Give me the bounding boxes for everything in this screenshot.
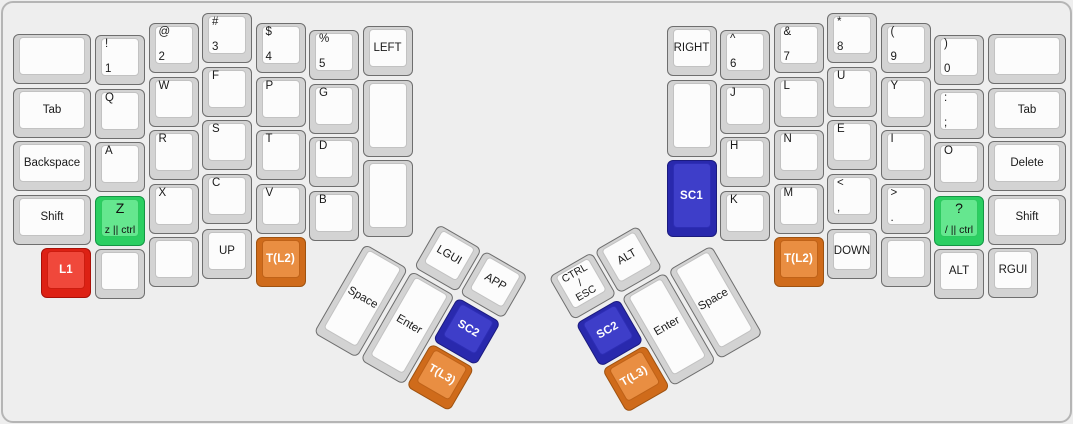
keytop: LGUI: [423, 229, 475, 281]
key-right-0[interactable]: )0: [934, 35, 984, 85]
keytop: Shift: [19, 198, 85, 236]
key-right-delete[interactable]: Delete: [988, 141, 1066, 191]
key-right-question-ctrl[interactable]: ?/ || ctrl: [934, 196, 984, 246]
keytop: [155, 240, 193, 278]
keytop: Tab: [19, 91, 85, 129]
key-right-alt[interactable]: ALT: [934, 249, 984, 299]
key-right-n[interactable]: N: [774, 130, 824, 180]
key-label: LGUI: [421, 229, 477, 282]
keytop: APP: [469, 256, 521, 308]
keytop: I: [887, 133, 925, 171]
keytop: %5: [315, 33, 353, 71]
keytop: *8: [833, 16, 871, 54]
key-label: UP: [205, 233, 249, 269]
keytop: CTRL/ESC: [555, 258, 607, 310]
key-label: L: [784, 80, 790, 92]
key-label: F: [212, 70, 219, 82]
key-left-blank-tall-1[interactable]: [363, 80, 413, 157]
key-left-t-l2[interactable]: T(L2): [256, 237, 306, 287]
key-label: / || ctrl: [937, 224, 981, 236]
key-label: V: [266, 187, 274, 199]
key-right-e[interactable]: E: [827, 120, 877, 170]
keytop: D: [315, 140, 353, 178]
key-label: ): [944, 38, 948, 50]
keytop: Backspace: [19, 144, 85, 182]
key-label: Y: [891, 80, 899, 92]
key-right-right-arrow[interactable]: RIGHT: [667, 26, 717, 76]
key-right-tab[interactable]: Tab: [988, 88, 1066, 138]
keytop: :;: [940, 92, 978, 130]
key-label: N: [784, 133, 792, 145]
key-left-c[interactable]: C: [202, 174, 252, 224]
key-right-7[interactable]: &7: [774, 23, 824, 73]
key-label: I: [891, 133, 894, 145]
keytop: [369, 83, 407, 148]
keytop: ALT: [601, 231, 653, 283]
key-label: Delete: [991, 145, 1063, 181]
key-right-down[interactable]: DOWN: [827, 229, 877, 279]
key-right-l[interactable]: L: [774, 77, 824, 127]
key-right-6[interactable]: ^6: [720, 30, 770, 80]
key-left-blank-bottom-1[interactable]: [95, 249, 145, 299]
key-label: Shift: [991, 199, 1063, 235]
key-label: 1: [105, 63, 111, 75]
key-left-2[interactable]: @2: [149, 23, 199, 73]
key-left-l1[interactable]: L1: [41, 248, 91, 298]
keytop: RGUI: [994, 251, 1032, 289]
key-label: X: [159, 187, 167, 199]
keytop: Tab: [994, 91, 1060, 129]
key-label: E: [837, 123, 845, 135]
key-left-z-ctrl[interactable]: Zz || ctrl: [95, 196, 145, 246]
keytop: $4: [262, 26, 300, 64]
keytop: P: [262, 80, 300, 118]
keytop: [994, 37, 1060, 75]
key-label: 6: [730, 58, 736, 70]
key-label: U: [837, 70, 845, 82]
keytop: T(L3): [416, 349, 468, 401]
keytop: #3: [208, 16, 246, 54]
key-right-semicolon[interactable]: :;: [934, 89, 984, 139]
key-left-r[interactable]: R: [149, 130, 199, 180]
key-label-line: ESC: [574, 283, 598, 304]
key-label: A: [105, 145, 113, 157]
key-label: :: [944, 92, 947, 104]
keytop: G: [315, 87, 353, 125]
key-label: D: [319, 140, 327, 152]
key-label: LEFT: [366, 30, 410, 66]
keytop: [19, 37, 85, 75]
key-label: ?: [941, 200, 977, 216]
key-label: Z: [102, 200, 138, 216]
key-left-g[interactable]: G: [309, 84, 359, 134]
key-label: RGUI: [991, 252, 1035, 288]
key-label: Backspace: [16, 145, 88, 181]
keytop: UP: [208, 232, 246, 270]
key-right-8[interactable]: *8: [827, 13, 877, 63]
key-label: W: [159, 80, 170, 92]
key-left-shift[interactable]: Shift: [13, 195, 91, 245]
keytop: B: [315, 194, 353, 232]
key-left-up[interactable]: UP: [202, 229, 252, 279]
keytop: [101, 252, 139, 290]
key-label: Q: [105, 92, 114, 104]
key-label: C: [212, 177, 220, 189]
keytop: E: [833, 123, 871, 161]
keytop: &7: [780, 26, 818, 64]
keytop: L1: [47, 251, 85, 289]
keytop: V: [262, 187, 300, 225]
key-right-blank-bottom[interactable]: [881, 237, 931, 287]
keytop: [369, 163, 407, 228]
keytop: ALT: [940, 252, 978, 290]
key-label: DOWN: [830, 233, 874, 269]
key-label: 4: [266, 51, 272, 63]
key-label: 3: [212, 41, 218, 53]
key-label: B: [319, 194, 327, 206]
key-label: S: [212, 123, 220, 135]
keytop: T(L2): [780, 240, 818, 278]
key-left-tab[interactable]: Tab: [13, 88, 91, 138]
keytop: !1: [101, 38, 139, 76]
key-label: 0: [944, 63, 950, 75]
key-label: M: [784, 187, 794, 199]
key-right-i[interactable]: I: [881, 130, 931, 180]
key-right-rgui[interactable]: RGUI: [988, 248, 1038, 298]
keytop: M: [780, 187, 818, 225]
keytop: Shift: [994, 198, 1060, 236]
key-label: #: [212, 16, 218, 28]
keytop: SC2: [581, 304, 633, 356]
key-label: L1: [44, 252, 88, 288]
key-label: (: [891, 26, 895, 38]
keytop: ?/ || ctrl: [940, 199, 978, 237]
key-label: .: [891, 212, 894, 224]
key-label: P: [266, 80, 274, 92]
keytop: L: [780, 80, 818, 118]
key-label: CTRL/ESC: [553, 257, 609, 310]
key-left-d[interactable]: D: [309, 137, 359, 187]
key-label: 7: [784, 51, 790, 63]
key-left-left-arrow[interactable]: LEFT: [363, 26, 413, 76]
keytop: S: [208, 123, 246, 161]
keytop: [887, 240, 925, 278]
key-right-k[interactable]: K: [720, 191, 770, 241]
keytop: [673, 83, 711, 148]
key-left-v[interactable]: V: [256, 184, 306, 234]
key-right-comma[interactable]: <,: [827, 174, 877, 224]
key-label: RIGHT: [670, 30, 714, 66]
key-label: APP: [467, 255, 523, 308]
key-right-j[interactable]: J: [720, 84, 770, 134]
key-label: O: [944, 145, 953, 157]
keytop: Zz || ctrl: [101, 199, 139, 237]
keytop: )0: [940, 38, 978, 76]
keytop: (9: [887, 26, 925, 64]
keytop: T: [262, 133, 300, 171]
keytop: K: [726, 194, 764, 232]
keytop: T(L2): [262, 240, 300, 278]
keytop: O: [940, 145, 978, 183]
keytop: RIGHT: [673, 29, 711, 67]
key-label: <: [837, 177, 844, 189]
key-label: Tab: [16, 92, 88, 128]
key-label: H: [730, 140, 738, 152]
key-left-blank-top[interactable]: [13, 34, 91, 84]
key-right-y[interactable]: Y: [881, 77, 931, 127]
keytop: <,: [833, 177, 871, 215]
key-right-m[interactable]: M: [774, 184, 824, 234]
key-label: $: [266, 26, 272, 38]
key-left-s[interactable]: S: [202, 120, 252, 170]
key-label: @: [159, 26, 171, 38]
keytop: T(L3): [608, 351, 660, 403]
keytop: Q: [101, 92, 139, 130]
key-label: *: [837, 16, 841, 28]
key-label: >: [891, 187, 898, 199]
key-right-9[interactable]: (9: [881, 23, 931, 73]
key-label: z || ctrl: [98, 224, 142, 236]
key-left-q[interactable]: Q: [95, 89, 145, 139]
keytop: ^6: [726, 33, 764, 71]
keytop: SC1: [673, 163, 711, 228]
keytop: X: [155, 187, 193, 225]
key-left-5[interactable]: %5: [309, 30, 359, 80]
key-left-w[interactable]: W: [149, 77, 199, 127]
key-left-b[interactable]: B: [309, 191, 359, 241]
key-right-h[interactable]: H: [720, 137, 770, 187]
keytop: C: [208, 177, 246, 215]
key-label: Tab: [991, 92, 1063, 128]
key-left-4[interactable]: $4: [256, 23, 306, 73]
key-label: Shift: [16, 199, 88, 235]
key-label: ^: [730, 33, 735, 45]
key-label: SC1: [670, 164, 714, 227]
key-label: !: [105, 38, 108, 50]
key-right-u[interactable]: U: [827, 67, 877, 117]
key-label: &: [784, 26, 792, 38]
keytop: H: [726, 140, 764, 178]
keytop: W: [155, 80, 193, 118]
key-label: R: [159, 133, 167, 145]
keyboard-board: LGUIAPPSpaceEnterSC2T(L3)CTRL/ESCALTSC2T…: [1, 1, 1072, 423]
key-right-period[interactable]: >.: [881, 184, 931, 234]
keytop: U: [833, 70, 871, 108]
key-label: 9: [891, 51, 897, 63]
keytop: J: [726, 87, 764, 125]
keytop: R: [155, 133, 193, 171]
key-left-x[interactable]: X: [149, 184, 199, 234]
key-label: 2: [159, 51, 165, 63]
key-left-p[interactable]: P: [256, 77, 306, 127]
keytop: Y: [887, 80, 925, 118]
key-label: T(L2): [259, 241, 303, 277]
keytop: N: [780, 133, 818, 171]
key-label: ,: [837, 202, 840, 214]
key-label: ALT: [937, 253, 981, 289]
key-label: ALT: [599, 230, 655, 283]
key-left-f[interactable]: F: [202, 67, 252, 117]
key-label: 8: [837, 41, 843, 53]
key-left-backspace[interactable]: Backspace: [13, 141, 91, 191]
keytop: @2: [155, 26, 193, 64]
key-right-blank-tall[interactable]: [667, 80, 717, 157]
keytop: Delete: [994, 144, 1060, 182]
key-left-blank-tall-2[interactable]: [363, 160, 413, 237]
key-label-line: CTRL: [560, 262, 589, 286]
key-label: J: [730, 87, 736, 99]
keytop: LEFT: [369, 29, 407, 67]
key-right-sc1[interactable]: SC1: [667, 160, 717, 237]
key-label: G: [319, 87, 328, 99]
key-left-t[interactable]: T: [256, 130, 306, 180]
key-label: 5: [319, 58, 325, 70]
key-left-1[interactable]: !1: [95, 35, 145, 85]
key-left-3[interactable]: #3: [202, 13, 252, 63]
key-label: T(L2): [777, 241, 821, 277]
keytop: F: [208, 70, 246, 108]
key-left-a[interactable]: A: [95, 142, 145, 192]
key-left-blank-bottom-2[interactable]: [149, 237, 199, 287]
key-label: %: [319, 33, 329, 45]
key-label: T: [266, 133, 273, 145]
key-right-blank-top[interactable]: [988, 34, 1066, 84]
key-right-shift[interactable]: Shift: [988, 195, 1066, 245]
keytop: A: [101, 145, 139, 183]
keytop: SC2: [443, 302, 495, 354]
key-right-t-l2[interactable]: T(L2): [774, 237, 824, 287]
keytop: DOWN: [833, 232, 871, 270]
key-right-o[interactable]: O: [934, 142, 984, 192]
key-label: ;: [944, 117, 947, 129]
keytop: >.: [887, 187, 925, 225]
key-label: K: [730, 194, 738, 206]
